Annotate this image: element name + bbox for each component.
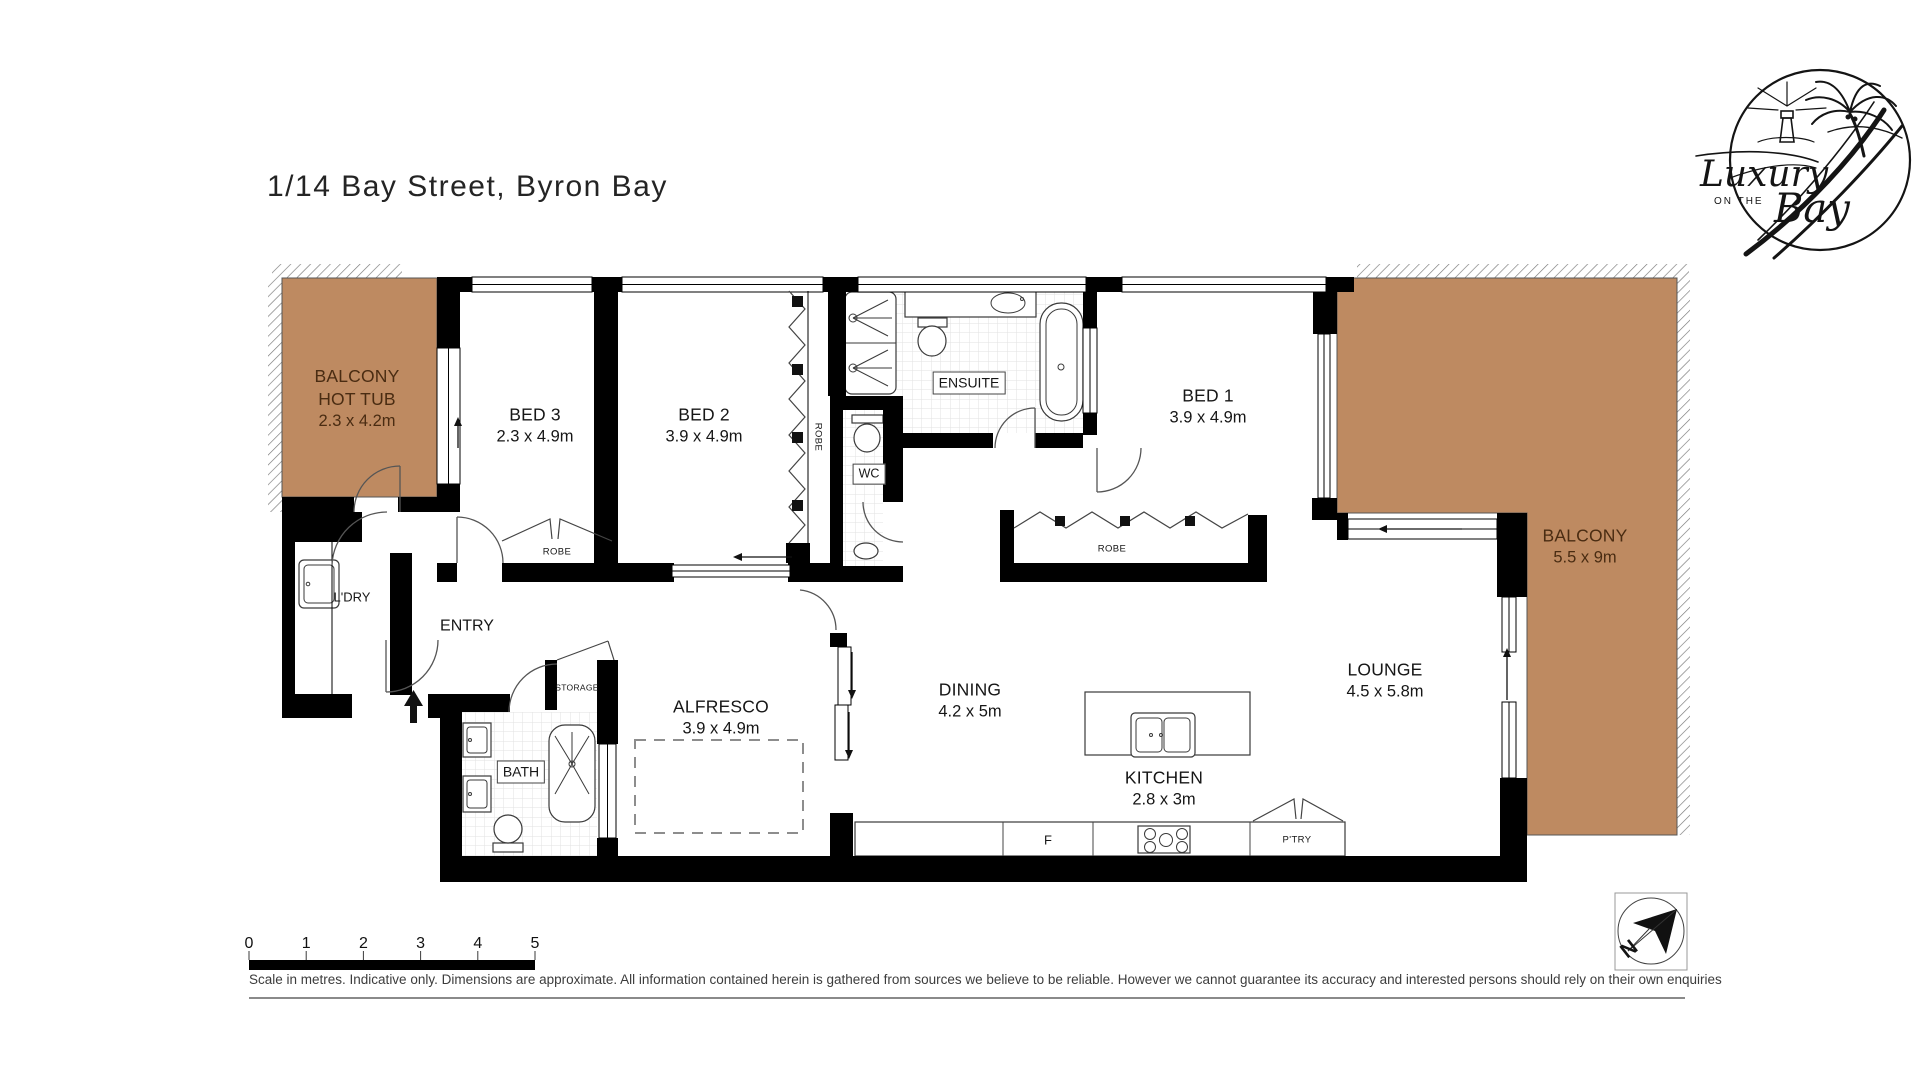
fridge-label: F — [1044, 831, 1052, 848]
kitchen-island — [1085, 692, 1250, 757]
kitchen-bench — [855, 822, 1345, 856]
room-label-bath: BATH — [497, 761, 545, 784]
toilet-icon — [918, 318, 947, 356]
room-dims: 3.9 x 4.9m — [1169, 408, 1246, 430]
room-dims: 2.3 x 4.2m — [314, 411, 399, 433]
room-dims: 3.9 x 4.9m — [673, 719, 769, 741]
scale-tick-4: 4 — [473, 935, 482, 953]
room-dims: 3.9 x 4.9m — [665, 427, 742, 449]
room-dims: 4.5 x 5.8m — [1346, 682, 1423, 704]
room-dims: 5.5 x 9m — [1542, 548, 1627, 570]
room-label-balcony-hot-tub: BALCONY HOT TUB 2.3 x 4.2m — [314, 365, 399, 433]
room-name: ALFRESCO — [673, 696, 769, 719]
room-name: HOT TUB — [314, 388, 399, 411]
scale-tick-1: 1 — [302, 935, 311, 953]
shower-icon — [549, 725, 595, 822]
page-title: 1/14 Bay Street, Byron Bay — [267, 170, 668, 204]
disclaimer-text: Scale in metres. Indicative only. Dimens… — [249, 972, 1722, 987]
shower-icon — [845, 292, 896, 394]
room-name: BED 3 — [496, 404, 573, 427]
room-name: BED 2 — [665, 404, 742, 427]
bathtub-icon — [1040, 303, 1083, 421]
room-label-laundry: L'DRY — [334, 588, 371, 605]
vanity-icon — [905, 290, 1036, 317]
lighthouse-icon — [1748, 82, 1826, 142]
room-label-lounge: LOUNGE 4.5 x 5.8m — [1346, 659, 1423, 704]
pantry-doors — [1253, 799, 1343, 821]
room-name: BED 1 — [1169, 385, 1246, 408]
room-label-dining: DINING 4.2 x 5m — [938, 679, 1001, 724]
storage-door — [557, 641, 614, 660]
scale-tick-5: 5 — [531, 935, 540, 953]
room-label-entry: ENTRY — [440, 615, 494, 636]
room-label-kitchen: KITCHEN 2.8 x 3m — [1125, 767, 1203, 812]
cooktop-icon — [1138, 826, 1190, 853]
room-dims: 4.2 x 5m — [938, 702, 1001, 724]
floorplan-drawing: N Luxury — [0, 0, 1920, 1080]
toilet-icon — [493, 815, 523, 852]
room-label-alfresco: ALFRESCO 3.9 x 4.9m — [673, 696, 769, 741]
room-label-bed2: BED 2 3.9 x 4.9m — [665, 404, 742, 449]
logo-word-bay: Bay — [1773, 186, 1851, 232]
scale-tick-0: 0 — [245, 935, 254, 953]
robe-label-bed3: ROBE — [543, 547, 572, 560]
room-label-bed1: BED 1 3.9 x 4.9m — [1169, 385, 1246, 430]
agency-logo: Luxury ON THE Bay — [1696, 70, 1910, 258]
scale-tick-2: 2 — [359, 935, 368, 953]
pantry-label: P'TRY — [1283, 835, 1312, 848]
room-label-bed3: BED 3 2.3 x 4.9m — [496, 404, 573, 449]
room-label-storage: STORAGE — [555, 682, 599, 693]
robe-label-bed1: ROBE — [1098, 544, 1127, 557]
room-name: LOUNGE — [1346, 659, 1423, 682]
scale-tick-3: 3 — [416, 935, 425, 953]
room-name: BALCONY — [314, 365, 399, 388]
room-label-wc: WC — [853, 464, 886, 485]
logo-word-onthe: ON THE — [1714, 196, 1764, 207]
floorplan-page: N Luxury — [0, 0, 1920, 1080]
alfresco-outline — [635, 740, 803, 833]
room-label-balcony: BALCONY 5.5 x 9m — [1542, 525, 1627, 570]
robe-label-bed2: ROBE — [811, 423, 824, 452]
basin-icon — [854, 543, 878, 559]
room-name: BALCONY — [1542, 525, 1627, 548]
compass-icon: N — [1615, 893, 1687, 970]
room-label-ensuite: ENSUITE — [933, 372, 1006, 395]
room-name: KITCHEN — [1125, 767, 1203, 790]
room-dims: 2.8 x 3m — [1125, 790, 1203, 812]
room-name: DINING — [938, 679, 1001, 702]
room-dims: 2.3 x 4.9m — [496, 427, 573, 449]
